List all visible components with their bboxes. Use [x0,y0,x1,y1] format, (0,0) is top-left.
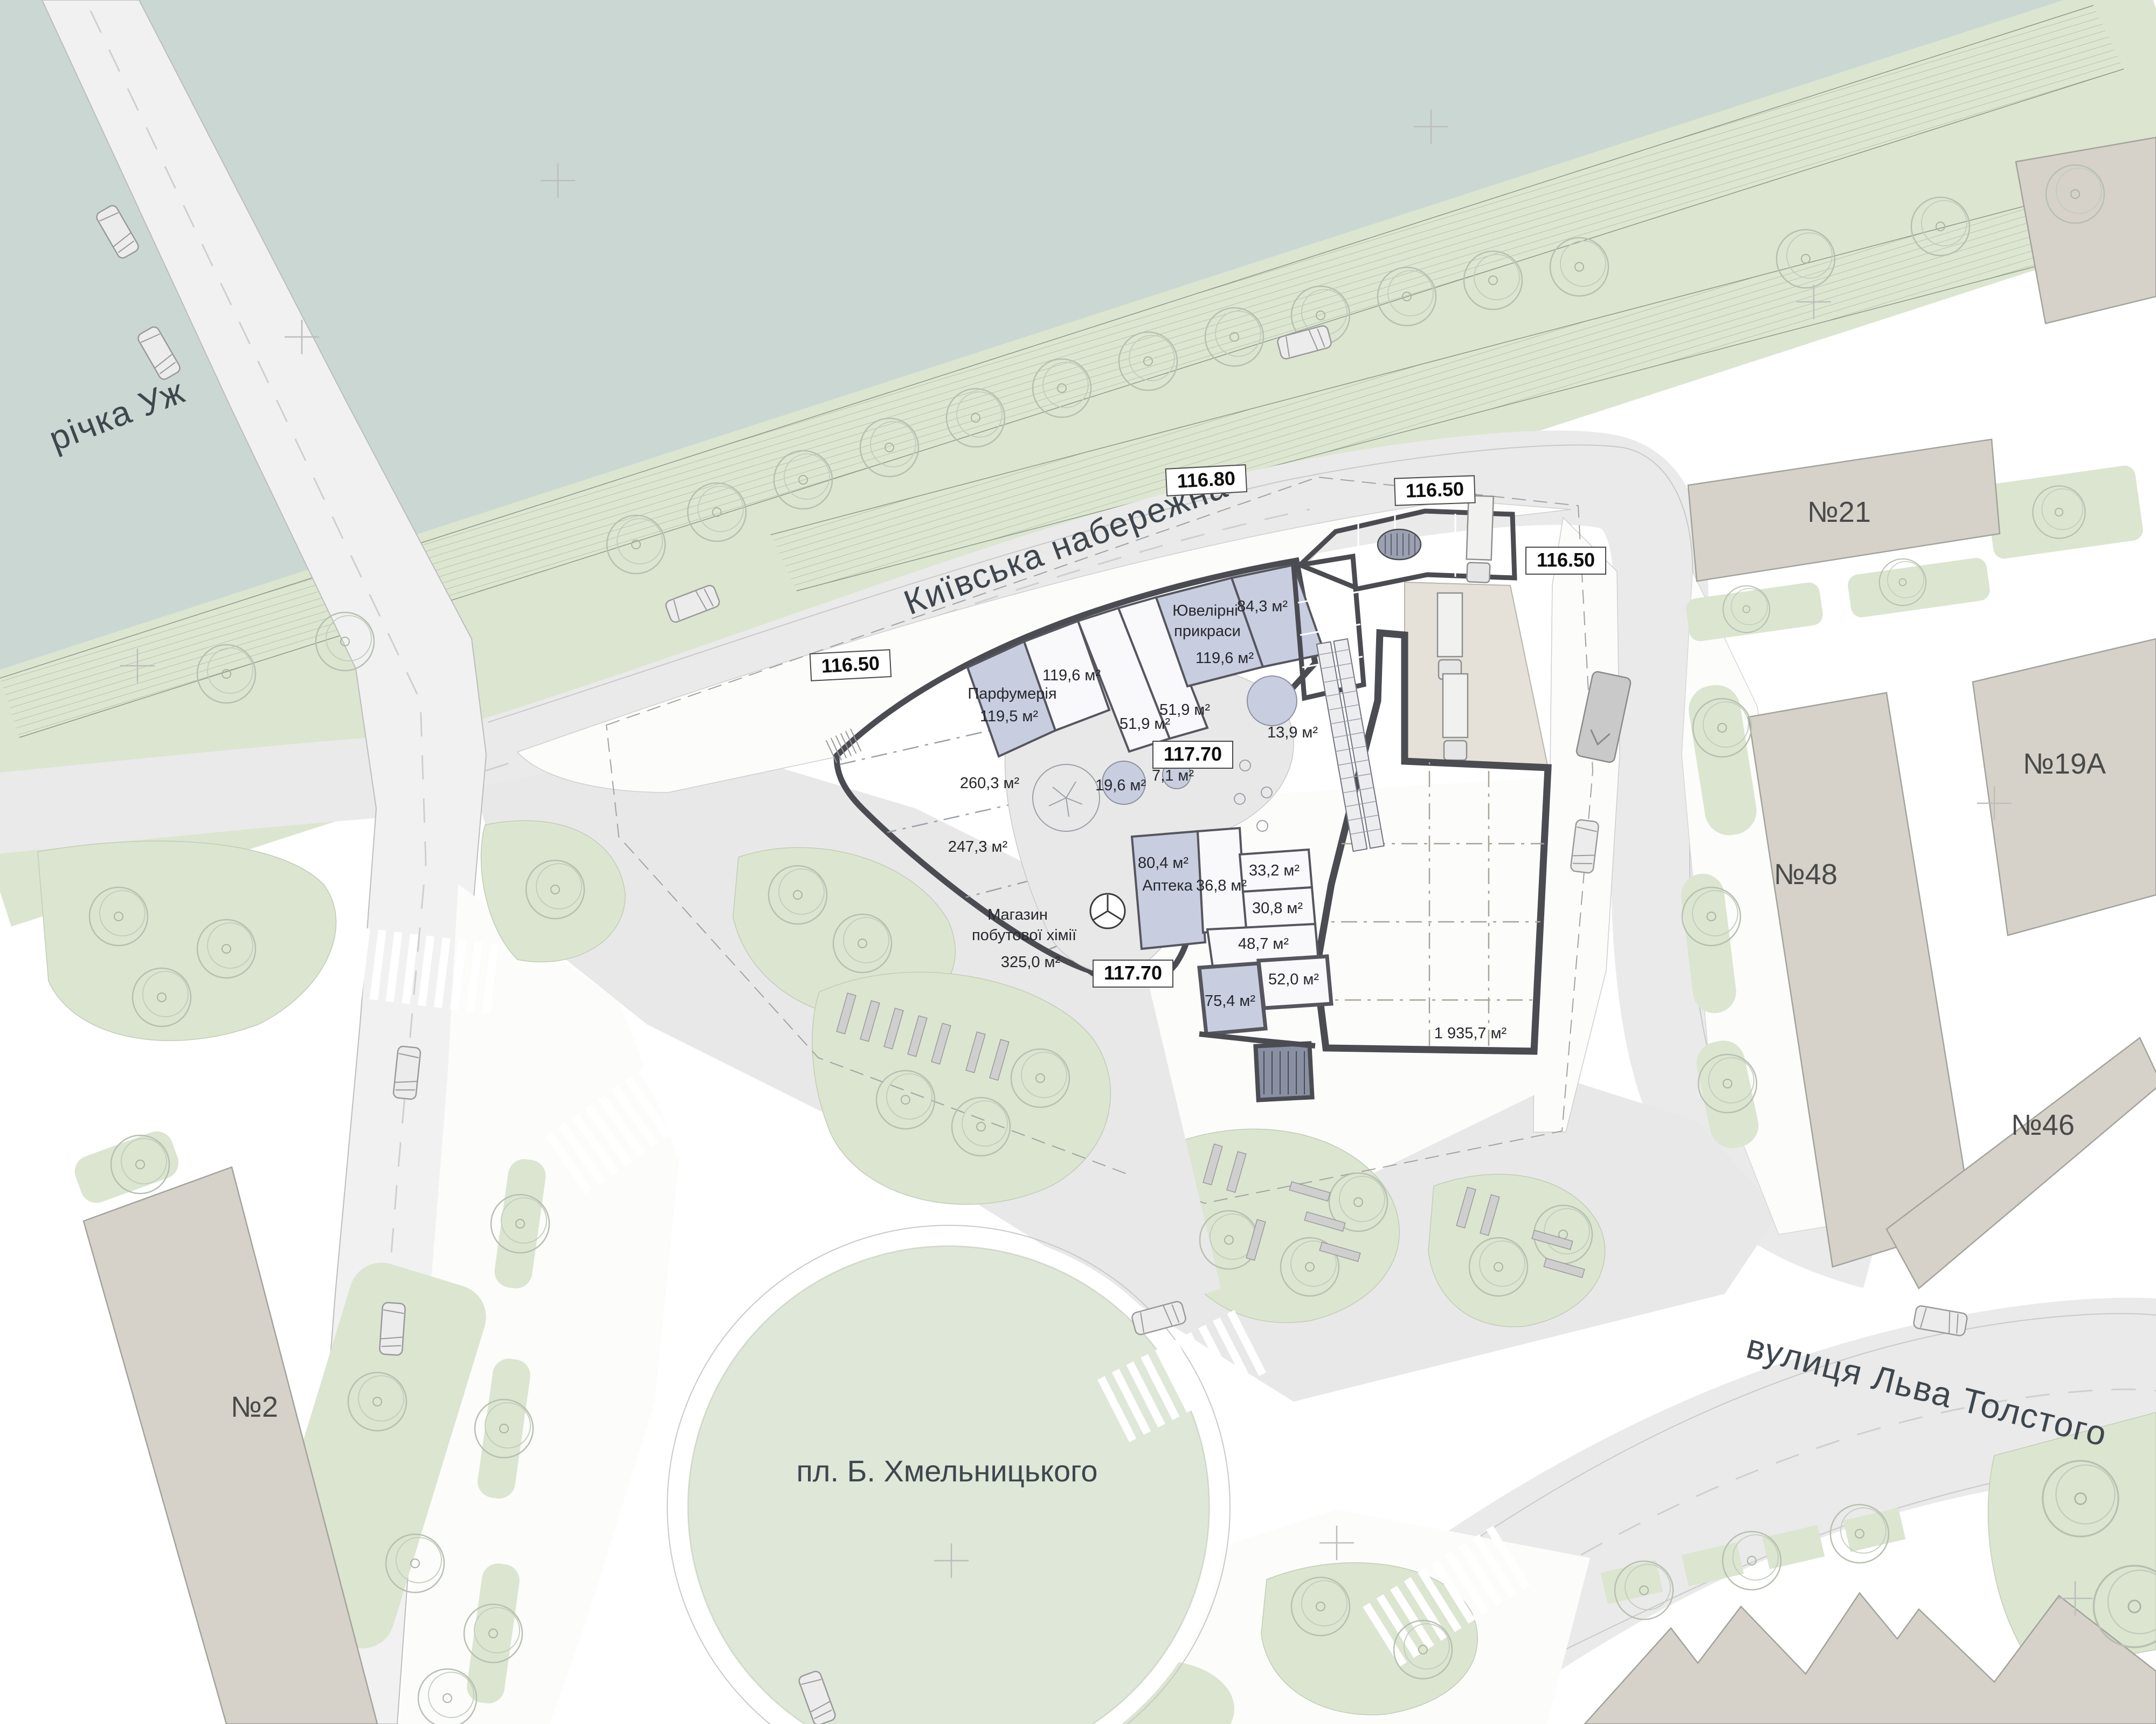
jewelry-name-1: Ювелірні [1172,602,1238,619]
svg-text:116.80: 116.80 [1177,467,1236,492]
planter-b-area: 7,1 м² [1152,767,1194,784]
retail-a-area: 119,6 м² [1042,667,1101,684]
building-46-label: №46 [2011,1109,2075,1141]
kiosk-round-area: 13,9 м² [1267,724,1318,741]
sales-a-area: 260,3 м² [960,775,1020,792]
elevation-label-117-70-a: 117.70 [1153,741,1233,768]
elevation-label-117-70-b: 117.70 [1093,960,1173,987]
sales-b-area: 247,3 м² [948,838,1008,856]
svg-text:116.50: 116.50 [821,652,880,677]
jewelry-name-2: прикраси [1174,623,1241,640]
site-plan-drawing: річка Уж Київська набережна вулиця Льва … [0,0,2156,1724]
unit-75-area: 75,4 м² [1205,992,1255,1010]
household-name-1: Магазин [987,906,1048,923]
building-2-label: №2 [231,1391,278,1423]
planter-a-area: 19,6 м² [1095,777,1146,794]
jewelry-area: 119,6 м² [1196,650,1254,667]
car-symbol [379,1302,406,1356]
elevation-label-116-80: 116.80 [1166,465,1247,496]
svg-text:117.70: 117.70 [1164,743,1222,765]
building-48-label: №48 [1774,858,1837,891]
building-19a [1973,639,2156,935]
elevation-label-116-50-b: 116.50 [1526,547,1606,574]
building-row-bottom-right [1585,1593,2156,1724]
pharmacy-area: 80,4 м² [1138,854,1188,872]
svg-text:117.70: 117.70 [1104,962,1162,984]
building-21-label: №21 [1807,496,1871,528]
stair-oval [1378,529,1421,560]
unit-36-area: 36,8 м² [1196,877,1247,894]
perfumery-name: Парфумерія [968,685,1056,702]
household-name-2: побутової хімії [972,927,1076,944]
household-area: 325,0 м² [1001,954,1061,971]
sales-hall-area: 1 935,7 м² [1434,1025,1507,1042]
kiosk-round [1247,676,1297,726]
unit-33-area: 33,2 м² [1249,862,1300,879]
perfumery-area: 119,5 м² [980,708,1038,725]
unit-84-area: 84,3 м² [1237,598,1288,615]
truck-symbol [1438,593,1462,679]
square-label: пл. Б. Хмельницького [796,1454,1097,1488]
pharmacy-name: Аптека [1142,877,1193,894]
rose-marker [1090,894,1125,928]
elevation-label-116-50-a: 116.50 [1394,475,1475,505]
car-symbol [393,1046,421,1100]
unit-52-area: 52,0 м² [1268,971,1319,988]
building-topright [2016,137,2156,323]
svg-text:116.50: 116.50 [1537,549,1595,571]
building-19a-label: №19А [2023,748,2106,780]
loading-dock-yard [1405,582,1548,768]
elevation-label-116-50-c: 116.50 [810,650,891,681]
svg-text:116.50: 116.50 [1405,478,1464,502]
small-b-area: 51,9 м² [1159,701,1210,719]
truck-symbol [1466,495,1494,583]
truck-symbol [1443,674,1468,760]
site-plan: річка Уж Київська набережна вулиця Льва … [0,0,2156,1724]
unit-48-area: 48,7 м² [1238,935,1289,953]
unit-30-area: 30,8 м² [1252,900,1303,917]
